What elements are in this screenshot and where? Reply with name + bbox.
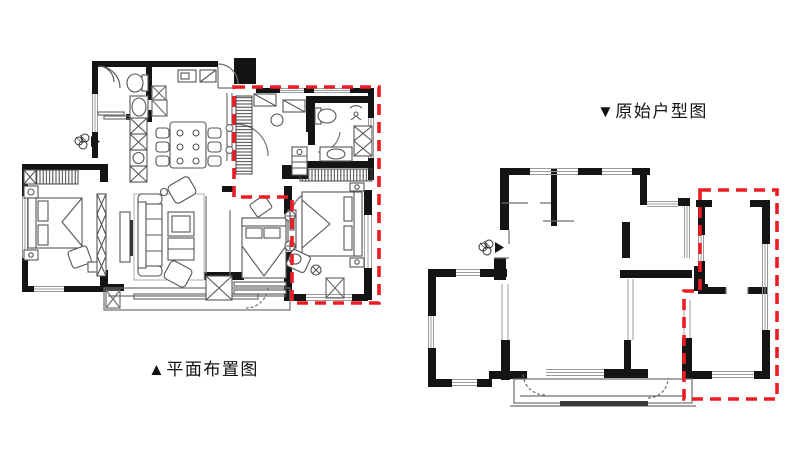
kitchen-cabinets [130,118,147,182]
left-floor-plan [22,58,379,310]
walkin-closet-hatch [236,96,252,174]
bed [242,218,286,278]
tv-console [120,212,133,262]
low-shelf [234,290,286,294]
floor-plan-sheet: ▲平面布置图 ▼原始户型图 [0,0,800,449]
sink [130,96,148,118]
bedroom-closet-hatch [36,170,78,184]
low-shelf [234,282,286,286]
kitchen-sink [178,70,196,82]
master-toilet [315,108,336,124]
toilet [127,74,148,92]
right-plan-caption: ▼原始户型图 [597,97,708,122]
shower-stall [354,126,372,156]
laundry-cabinet [292,147,307,175]
ottoman [271,114,283,126]
right-plan-windows [429,169,768,386]
master-bed [302,192,362,256]
shower-head-icon [350,106,362,120]
shower-icon [98,66,120,88]
left-plan-caption: ▲平面布置图 [148,355,259,380]
room-door-arc [648,378,668,398]
vanity [320,147,352,161]
right-plan-walls [428,168,770,387]
wardrobe-hatch [300,169,372,181]
bed [28,198,82,248]
stove [200,70,216,82]
sofa [138,194,162,276]
right-floor-plan [428,168,777,406]
coffee-table [168,212,194,260]
floor-plans-canvas [0,0,800,449]
bookshelf [97,194,106,276]
floor-lamp [161,189,168,196]
entry-marker-icon [479,240,504,255]
balcony-rail [560,401,648,406]
dining-table [170,122,206,168]
balcony-outline [514,379,692,403]
